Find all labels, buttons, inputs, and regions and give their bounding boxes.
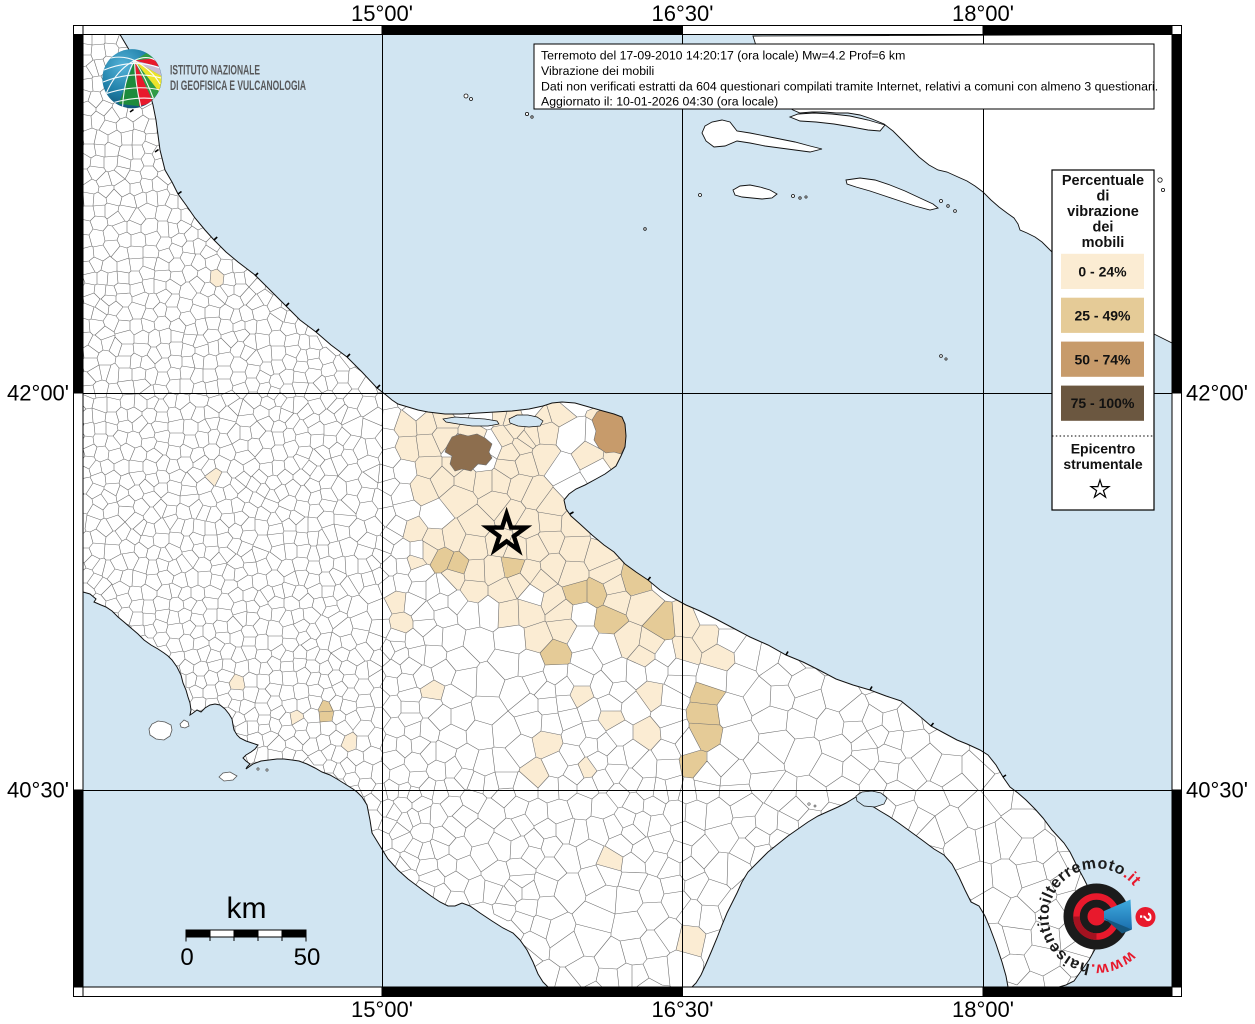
svg-text:40°30': 40°30'	[7, 778, 69, 803]
svg-text:vibrazione: vibrazione	[1067, 204, 1139, 220]
svg-text:dei: dei	[1093, 220, 1114, 236]
svg-text:16°30': 16°30'	[652, 1, 714, 26]
svg-text:?: ?	[1136, 912, 1155, 922]
svg-text:Vibrazione dei mobili: Vibrazione dei mobili	[541, 64, 654, 78]
svg-text:mobili: mobili	[1082, 235, 1125, 251]
svg-text:42°00': 42°00'	[7, 381, 69, 406]
svg-text:Dati non verificati estratti d: Dati non verificati estratti da 604 ques…	[541, 80, 1158, 94]
svg-text:Epicentro: Epicentro	[1071, 441, 1136, 457]
svg-text:16°30': 16°30'	[652, 997, 714, 1022]
svg-text:Terremoto del 17-09-2010 14:20: Terremoto del 17-09-2010 14:20:17 (ora l…	[541, 49, 905, 63]
svg-text:0 - 24%: 0 - 24%	[1078, 264, 1127, 280]
svg-text:18°00': 18°00'	[952, 1, 1014, 26]
svg-text:ISTITUTO NAZIONALE: ISTITUTO NAZIONALE	[170, 63, 260, 78]
svg-text:Aggiornato il: 10-01-2026 04:3: Aggiornato il: 10-01-2026 04:30 (ora loc…	[541, 95, 778, 109]
svg-text:40°30': 40°30'	[1186, 778, 1248, 803]
svg-text:di: di	[1097, 189, 1110, 205]
svg-text:18°00': 18°00'	[952, 997, 1014, 1022]
svg-text:DI GEOFISICA E VULCANOLOGIA: DI GEOFISICA E VULCANOLOGIA	[170, 78, 306, 93]
svg-text:15°00': 15°00'	[351, 997, 413, 1022]
svg-text:strumentale: strumentale	[1063, 456, 1143, 472]
svg-text:0: 0	[180, 944, 193, 971]
svg-text:15°00': 15°00'	[351, 1, 413, 26]
svg-text:km: km	[227, 892, 267, 925]
svg-text:Percentuale: Percentuale	[1062, 173, 1144, 189]
svg-text:25 - 49%: 25 - 49%	[1074, 307, 1131, 323]
svg-text:50: 50	[294, 944, 321, 971]
svg-text:75 - 100%: 75 - 100%	[1071, 395, 1135, 411]
svg-text:42°00': 42°00'	[1186, 381, 1248, 406]
svg-text:50 - 74%: 50 - 74%	[1074, 351, 1131, 367]
